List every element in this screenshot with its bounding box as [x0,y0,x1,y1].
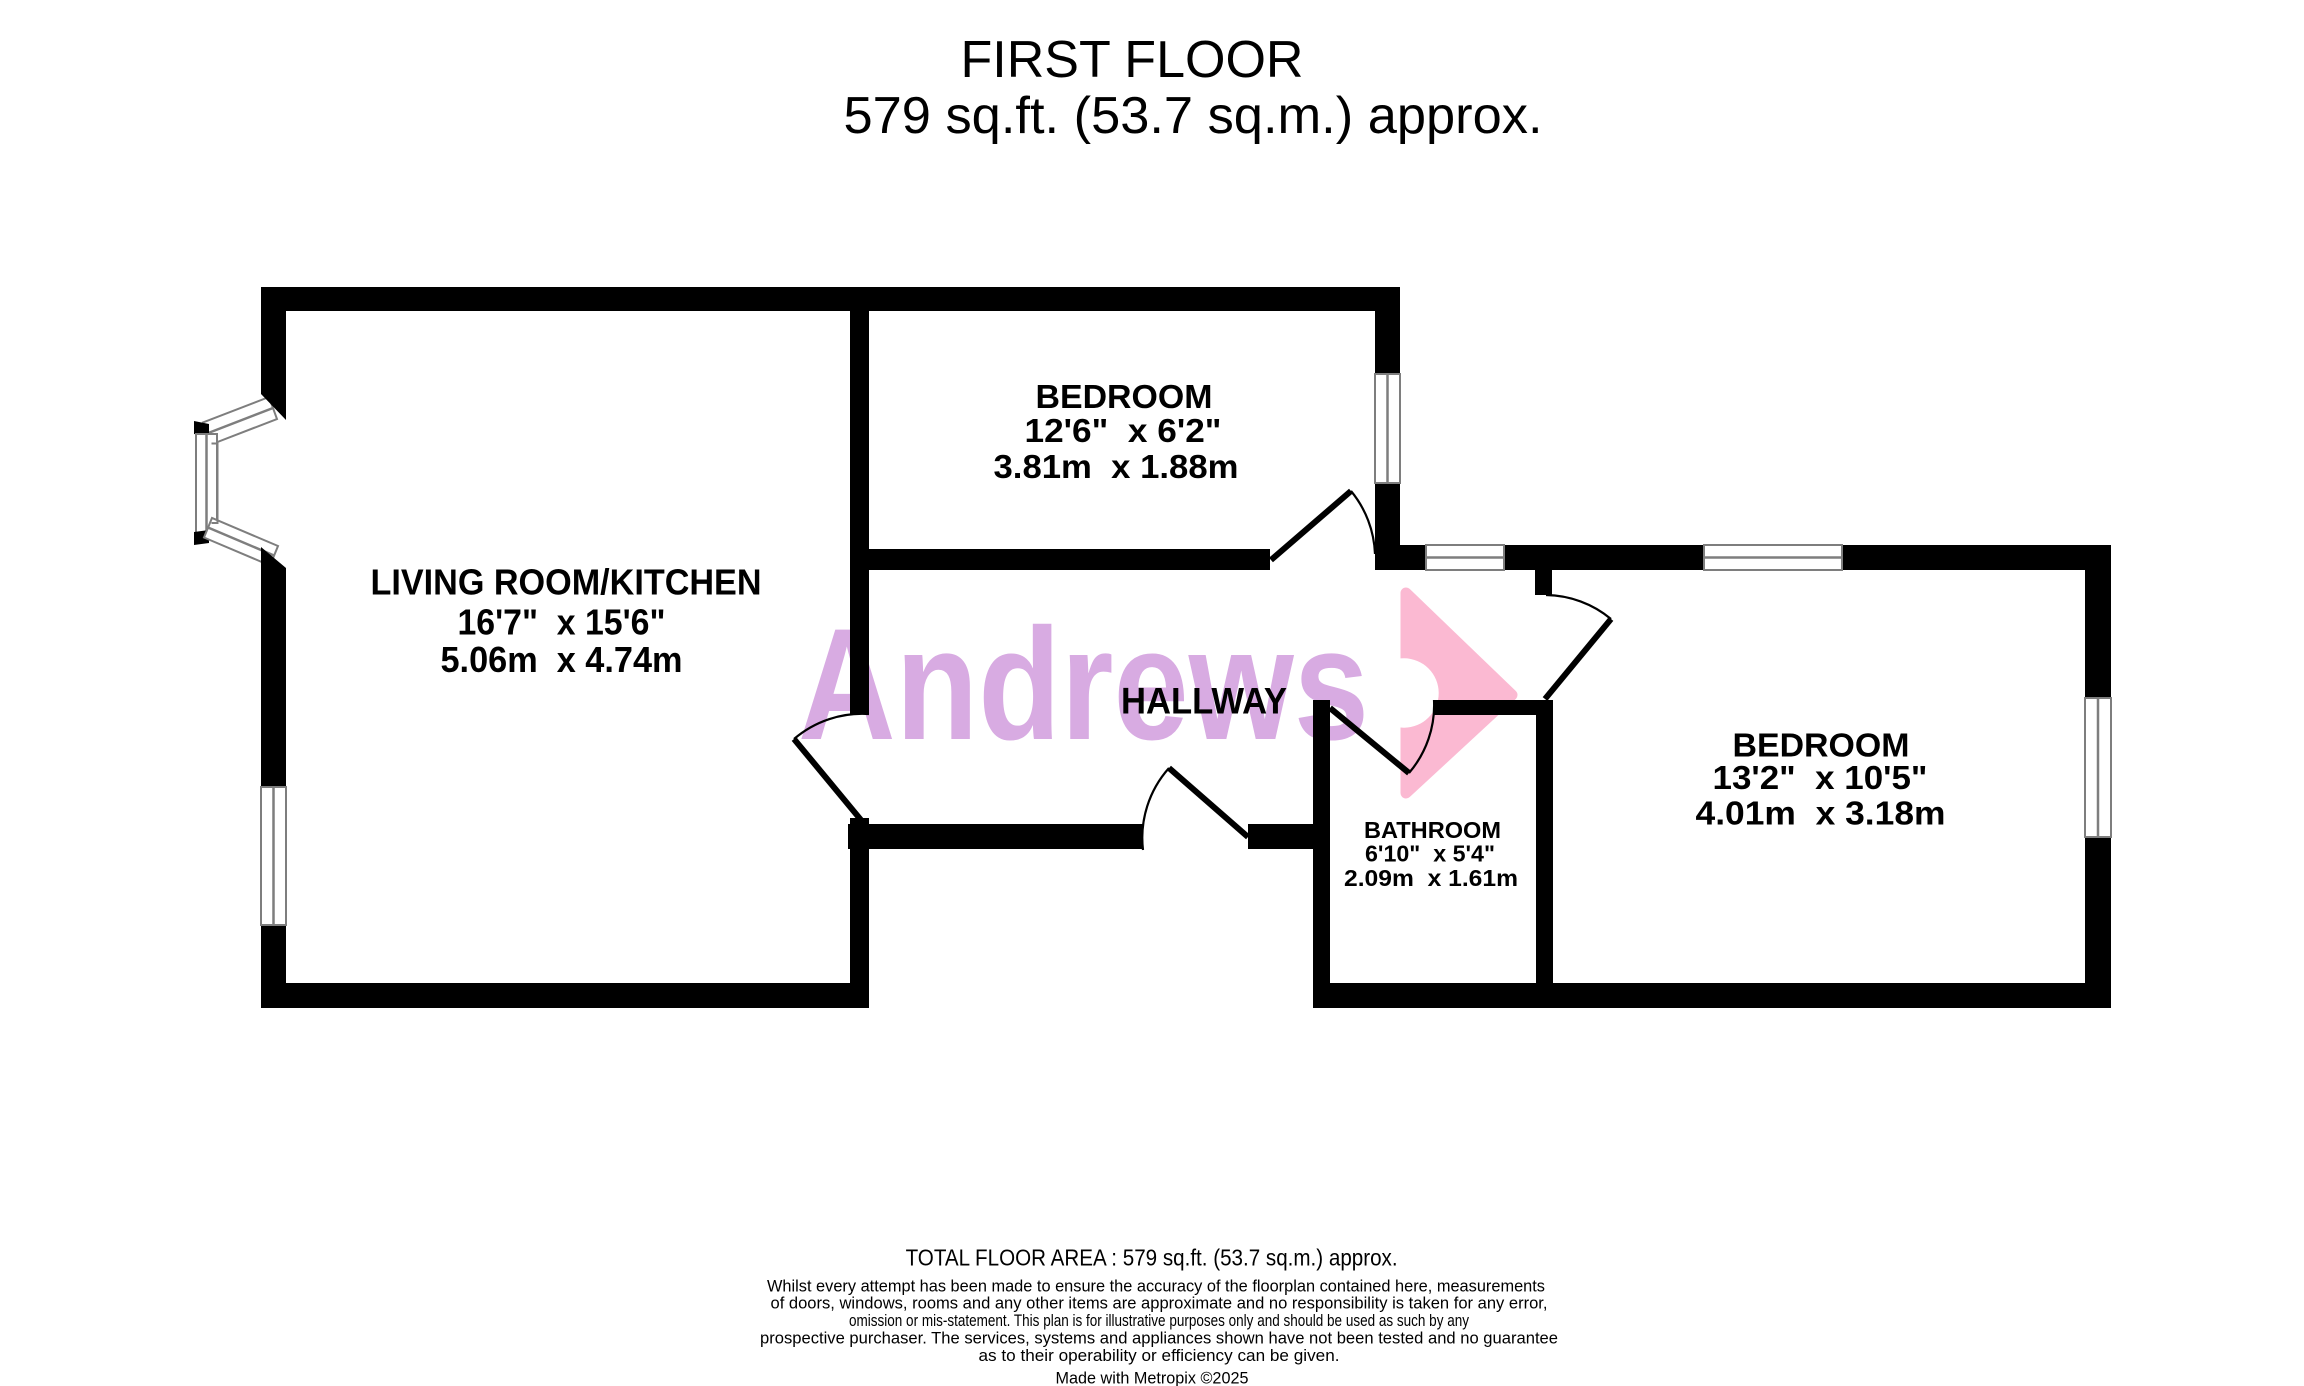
svg-text:5.06m x 4.74m: 5.06m x 4.74m [441,639,683,680]
svg-text:FIRST FLOOR: FIRST FLOOR [961,31,1304,89]
svg-text:BATHROOM: BATHROOM [1364,817,1501,843]
svg-text:BEDROOM: BEDROOM [1733,727,1910,764]
svg-text:TOTAL FLOOR AREA : 579 sq.ft.: TOTAL FLOOR AREA : 579 sq.ft. (53.7 sq.m… [906,1245,1398,1271]
svg-text:HALLWAY: HALLWAY [1121,680,1287,722]
svg-text:prospective purchaser. The ser: prospective purchaser. The services, sys… [760,1330,1558,1348]
svg-text:13'2" x 10'5": 13'2" x 10'5" [1713,759,1928,796]
svg-text:4.01m x 3.18m: 4.01m x 3.18m [1696,795,1946,832]
svg-text:as to their operability or eff: as to their operability or efficiency ca… [979,1347,1340,1365]
svg-text:579 sq.ft. (53.7 sq.m.) approx: 579 sq.ft. (53.7 sq.m.) approx. [844,87,1543,145]
svg-text:16'7" x 15'6": 16'7" x 15'6" [458,602,666,643]
svg-text:Whilst every attempt has been: Whilst every attempt has been made to en… [767,1277,1545,1295]
svg-text:Made with Metropix ©2025: Made with Metropix ©2025 [1056,1370,1249,1386]
svg-text:2.09m x 1.61m: 2.09m x 1.61m [1344,865,1518,891]
svg-text:12'6" x 6'2": 12'6" x 6'2" [1025,412,1222,449]
svg-text:3.81m x 1.88m: 3.81m x 1.88m [994,448,1239,485]
svg-text:BEDROOM: BEDROOM [1036,378,1213,415]
svg-text:of doors, windows, rooms and a: of doors, windows, rooms and any other i… [771,1295,1548,1313]
svg-text:LIVING ROOM/KITCHEN: LIVING ROOM/KITCHEN [371,562,762,603]
svg-text:omission or mis-statement. Thi: omission or mis-statement. This plan is … [849,1312,1470,1330]
svg-text:6'10" x 5'4": 6'10" x 5'4" [1365,841,1495,867]
